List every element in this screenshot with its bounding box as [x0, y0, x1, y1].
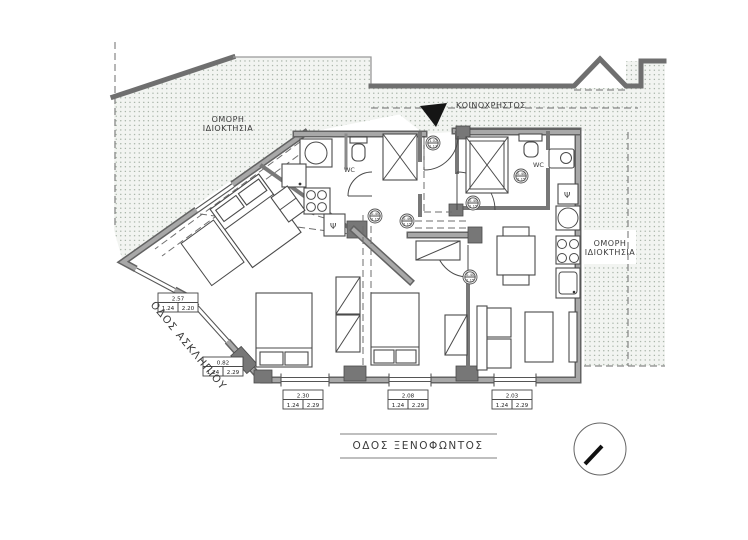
neighbor-label-left-2: ΙΔΙΟΚΤΗΣΙΑ [203, 124, 254, 133]
svg-text:2.13: 2.13 [429, 143, 438, 148]
bedroom2-furniture [256, 277, 360, 367]
floor-plan-canvas: Ψ WC [0, 0, 748, 540]
svg-text:1.24: 1.24 [287, 403, 300, 409]
svg-text:0.46: 0.46 [403, 216, 412, 221]
svg-text:1.02: 1.02 [429, 138, 438, 143]
wc-label-right: WC [533, 161, 544, 169]
floor-plan-page: Ψ WC [0, 0, 748, 540]
svg-text:2.15: 2.15 [517, 176, 526, 181]
communal-label: ΚΟΙΝΟΧΡΗΣΤΟΣ [456, 101, 526, 110]
svg-text:2.20: 2.20 [182, 306, 195, 312]
svg-text:2.29: 2.29 [516, 403, 529, 409]
svg-text:2.03: 2.03 [506, 393, 519, 399]
neighbor-label-right-2: ΙΔΙΟΚΤΗΣΙΑ [585, 248, 636, 257]
north-indicator [574, 423, 626, 475]
svg-text:2.08: 2.08 [402, 393, 415, 399]
svg-text:2.29: 2.29 [307, 403, 320, 409]
left-wc: WC [344, 134, 417, 180]
svg-text:1.24: 1.24 [496, 403, 509, 409]
dim-box: 2.03 1.24 2.29 [492, 390, 532, 409]
svg-text:0.40: 0.40 [466, 272, 475, 277]
dim-box: 2.08 1.24 2.29 [388, 390, 428, 409]
svg-text:1.24: 1.24 [392, 403, 405, 409]
neighbor-label-right-1: ΟΜΟΡΗ [594, 239, 627, 248]
svg-text:2.15: 2.15 [403, 221, 412, 226]
svg-text:0.40: 0.40 [517, 171, 526, 176]
wc-label-left: WC [344, 166, 355, 174]
fridge-symbol-right: Ψ [564, 191, 570, 200]
svg-text:2.15: 2.15 [466, 277, 475, 282]
svg-text:2.29: 2.29 [227, 370, 240, 376]
street-label-left: ΟΔΟΣ ΑΣΚΛΗΠΙΟΥ [148, 299, 229, 392]
svg-text:2.15: 2.15 [469, 203, 478, 208]
svg-text:2.57: 2.57 [172, 296, 185, 302]
dim-box: 2.30 1.24 2.29 [283, 390, 323, 409]
svg-text:2.29: 2.29 [412, 403, 425, 409]
svg-text:0.82: 0.82 [217, 360, 229, 366]
svg-text:2.30: 2.30 [297, 393, 310, 399]
svg-text:0.40: 0.40 [371, 211, 380, 216]
bottom-windows [254, 366, 536, 387]
street-label-bottom: ΟΔΟΣ ΞΕΝΟΦΩΝΤΟΣ [352, 440, 483, 452]
right-kitchen: Ψ [556, 184, 580, 298]
neighbor-label-left-1: ΟΜΟΡΗ [212, 115, 245, 124]
fridge-symbol-left: Ψ [330, 222, 336, 231]
svg-text:2.15: 2.15 [371, 216, 380, 221]
svg-text:0.40: 0.40 [469, 198, 478, 203]
